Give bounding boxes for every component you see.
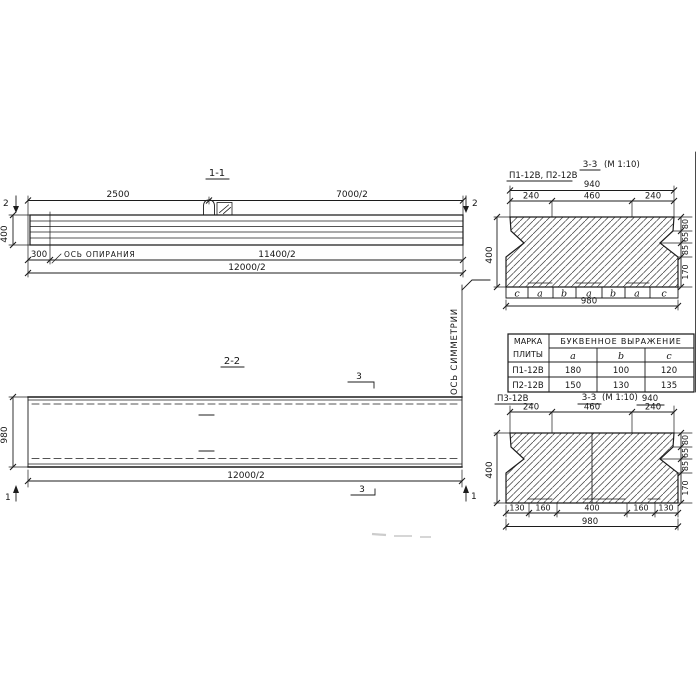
dim-400: 400 — [485, 246, 495, 263]
dim-240-r: 240 — [645, 403, 661, 413]
dim-980: 980 — [582, 517, 598, 527]
letter-a1: a — [537, 289, 543, 300]
cut-label-3-top: 3 — [356, 372, 362, 382]
dim-240-l: 240 — [523, 403, 539, 413]
dim-85: 85 — [681, 461, 690, 471]
header-plity: ПЛИТЫ — [513, 350, 543, 359]
row1-a: 180 — [565, 366, 581, 376]
dim-12000-2: 12000/2 — [227, 471, 264, 481]
section-title-scale: (М 1:10) — [604, 160, 640, 170]
letter-b1: b — [561, 289, 567, 300]
dim-160-l: 160 — [535, 504, 550, 513]
letter-b2: b — [610, 289, 616, 300]
section-title-scale: (М 1:10) — [602, 393, 638, 403]
dim-12000-2: 12000/2 — [228, 263, 265, 273]
dim-80: 80 — [681, 435, 690, 445]
dim-460: 460 — [584, 192, 600, 202]
blueprint-canvas: 1-1 2500 7000/2 2 2 400 300 ОСЬ ОПИРАНИЯ — [0, 0, 700, 700]
cut-label-3-bottom: 3 — [359, 485, 365, 495]
dim-2500: 2500 — [107, 190, 130, 200]
col-a: a — [570, 351, 576, 362]
cut-label-right: 2 — [472, 199, 478, 209]
plate-marks-label: П1-12В, П2-12В — [509, 171, 578, 181]
dim-170: 170 — [681, 480, 690, 495]
row2-mark: П2-12В — [512, 381, 544, 391]
dim-940: 940 — [584, 180, 600, 190]
scan-smudge — [372, 534, 386, 535]
row1-mark: П1-12В — [512, 366, 544, 376]
dim-7000-2: 7000/2 — [336, 190, 368, 200]
row2-c: 135 — [661, 381, 677, 391]
dim-65: 65 — [681, 232, 690, 242]
dim-130-l: 130 — [509, 504, 524, 513]
row2-a: 150 — [565, 381, 581, 391]
cut-label-1-right: 1 — [471, 492, 477, 502]
row1-c: 120 — [661, 366, 677, 376]
dim-460: 460 — [584, 403, 600, 413]
header-group: БУКВЕННОЕ ВЫРАЖЕНИЕ — [560, 337, 681, 346]
dim-80: 80 — [681, 219, 690, 229]
letter-c2: c — [661, 289, 667, 300]
dim-240-l: 240 — [523, 192, 539, 202]
dim-65: 65 — [681, 448, 690, 458]
dim-130-r: 130 — [658, 504, 673, 513]
section-title-num: 3-3 — [583, 160, 598, 170]
header-marka: МАРКА — [514, 337, 543, 346]
dim-240-r: 240 — [645, 192, 661, 202]
col-b: b — [618, 351, 624, 362]
dim-400-c: 400 — [584, 504, 599, 513]
section-title-num: 3-3 — [582, 393, 597, 403]
cut-label-1-left: 1 — [5, 493, 11, 503]
row2-b: 130 — [613, 381, 629, 391]
cross-section-hatched — [506, 217, 678, 287]
letter-a3: a — [634, 289, 640, 300]
section-1-1-title: 1-1 — [209, 168, 225, 179]
paper-background — [0, 0, 700, 700]
cut-label-left: 2 — [3, 199, 9, 209]
dim-300: 300 — [31, 250, 47, 260]
dim-160-r: 160 — [633, 504, 648, 513]
dim-170: 170 — [681, 264, 690, 279]
dim-85: 85 — [681, 245, 690, 255]
section-2-2-title: 2-2 — [224, 356, 240, 367]
symmetry-label: ОСЬ СИММЕТРИИ — [450, 308, 460, 395]
dim-11400-2: 11400/2 — [258, 250, 295, 260]
row1-b: 100 — [613, 366, 629, 376]
dim-400: 400 — [485, 461, 495, 478]
dim-980: 980 — [581, 297, 597, 307]
letter-c1: c — [514, 289, 520, 300]
col-c: c — [666, 351, 672, 362]
dim-980: 980 — [0, 426, 10, 443]
support-axis-label: ОСЬ ОПИРАНИЯ — [64, 250, 136, 259]
dim-400: 400 — [0, 225, 10, 242]
